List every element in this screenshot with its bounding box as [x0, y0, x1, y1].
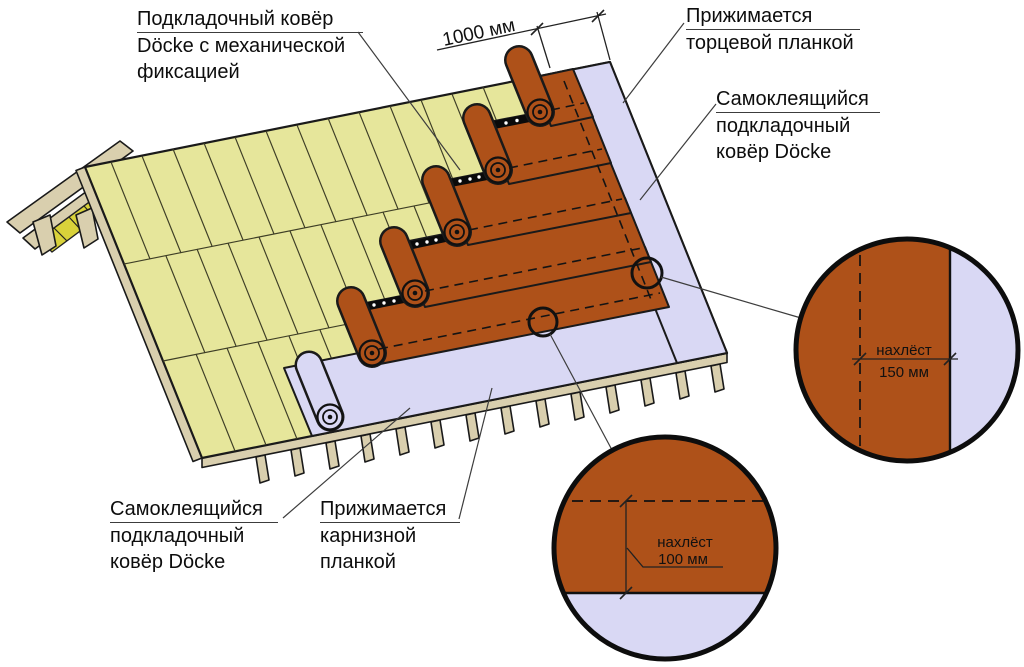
label-line: ковёр Döcke	[110, 549, 278, 575]
label-underlayment-mechanical: Подкладочный ковёр Döcke с механической …	[137, 6, 363, 85]
label-line: подкладочный	[110, 523, 278, 549]
label-pressed-end-strip: Прижимается торцевой планкой	[686, 3, 860, 56]
label-line: Döcke с механической	[137, 33, 363, 59]
bottom-overlap-value: 100 мм	[658, 551, 708, 568]
dimension-1000mm-text: 1000 мм	[441, 15, 517, 51]
label-line: фиксацией	[137, 59, 363, 85]
bottom-overlap-label: нахлёст	[657, 534, 713, 551]
label-line: Подкладочный ковёр	[137, 6, 363, 33]
label-line: планкой	[320, 549, 460, 575]
label-line: ковёр Döcke	[716, 139, 880, 165]
label-self-adhesive-right: Самоклеящийся подкладочный ковёр Döcke	[716, 86, 880, 165]
label-line: карнизной	[320, 523, 460, 549]
label-self-adhesive-bottom: Самоклеящийся подкладочный ковёр Döcke	[110, 496, 278, 575]
label-line: Прижимается	[320, 496, 460, 523]
label-line: подкладочный	[716, 113, 880, 139]
label-line: Самоклеящийся	[110, 496, 278, 523]
side-overlap-label: нахлёст	[876, 342, 932, 359]
roofing-underlayment-diagram: 1000 мм нахлёст 150 мм	[0, 0, 1024, 667]
label-pressed-eaves-strip: Прижимается карнизной планкой	[320, 496, 460, 575]
label-line: торцевой планкой	[686, 30, 860, 56]
detail-circle-100: нахлёст 100 мм	[554, 437, 780, 663]
label-line: Самоклеящийся	[716, 86, 880, 113]
side-overlap-value: 150 мм	[879, 364, 929, 381]
detail-circle-150: нахлёст 150 мм	[794, 237, 1022, 463]
label-line: Прижимается	[686, 3, 860, 30]
